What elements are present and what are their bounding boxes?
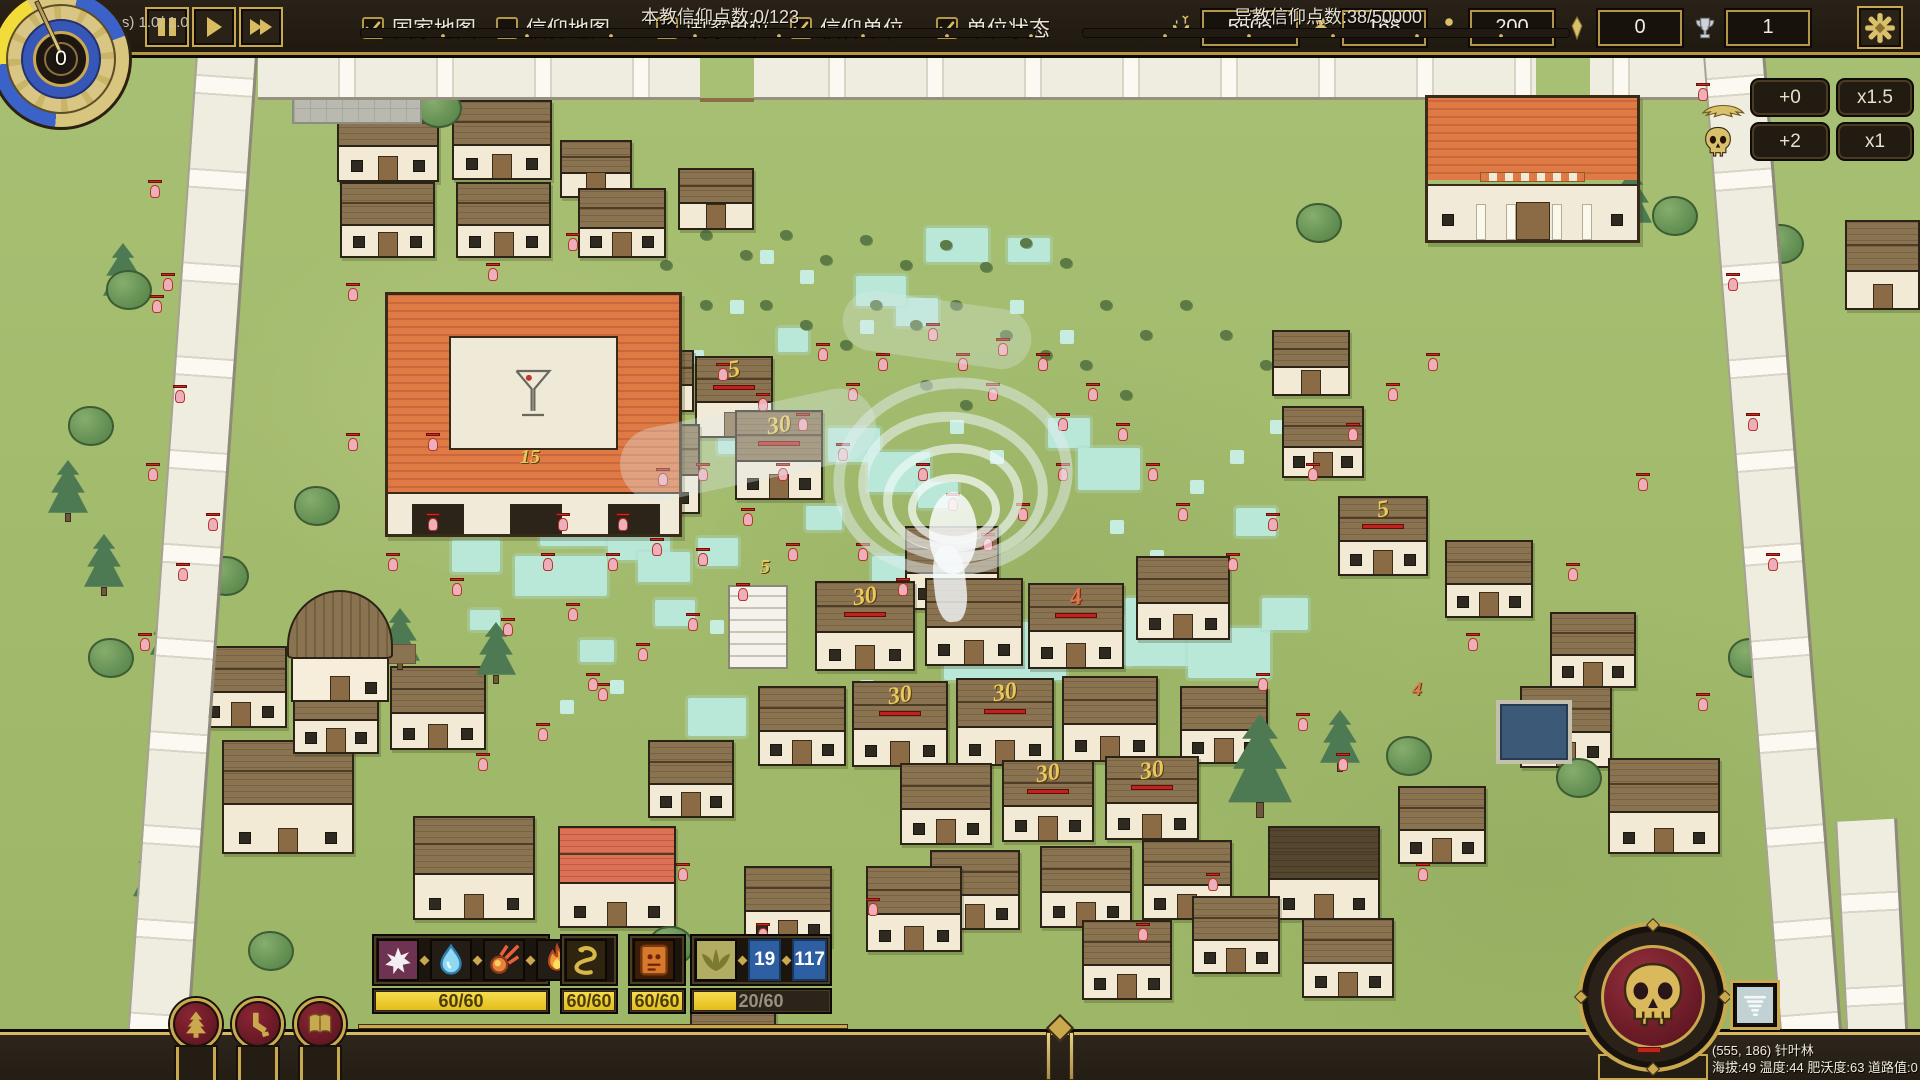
house-wall: [560, 884, 674, 926]
medallion-tail: [300, 1047, 340, 1080]
ability-icons-row: [560, 934, 618, 986]
house-window: [648, 906, 660, 918]
bush: [1220, 330, 1232, 340]
house[interactable]: [413, 816, 535, 920]
house-wall: [1138, 604, 1228, 638]
house-roof: [1447, 542, 1531, 585]
house-window: [355, 732, 367, 744]
unit-health-bar: [866, 898, 880, 901]
enemy-unit[interactable]: [1178, 508, 1188, 521]
round-hut[interactable]: [287, 590, 393, 702]
enemy-unit[interactable]: [208, 518, 218, 531]
ability-meteor[interactable]: [483, 939, 525, 981]
unit-health-bar: [346, 283, 360, 286]
house-door: [428, 724, 448, 748]
cooldown-bar: 20/60: [690, 988, 832, 1014]
round-tree: [294, 486, 340, 526]
enemy-unit[interactable]: [1748, 418, 1758, 431]
temple-secondary[interactable]: [1425, 95, 1640, 243]
house-wall: [224, 805, 352, 852]
enemy-unit[interactable]: [718, 368, 728, 381]
unit-health-bar: [426, 513, 440, 516]
house[interactable]: [900, 763, 992, 845]
enemy-unit[interactable]: [163, 278, 173, 291]
house-window: [1192, 742, 1204, 754]
unit-health-bar: [676, 863, 690, 866]
house[interactable]: [1445, 540, 1533, 618]
house-window: [469, 236, 481, 248]
enemy-unit[interactable]: [1418, 868, 1428, 881]
house-window: [413, 160, 425, 172]
house-window: [967, 823, 979, 835]
house-window: [829, 649, 841, 661]
ability-icons-row: [372, 934, 550, 986]
house-window: [1256, 952, 1268, 964]
enemy-unit[interactable]: [1228, 558, 1238, 571]
enemy-unit[interactable]: [543, 558, 553, 571]
house-wall: [958, 728, 1052, 764]
round-tree: [1386, 736, 1432, 776]
ability-icons-row: [628, 934, 686, 986]
house[interactable]: [1302, 918, 1394, 998]
temple-wall: [1428, 184, 1637, 240]
house[interactable]: [866, 866, 962, 952]
unit-health-bar: [1086, 383, 1100, 386]
enemy-unit[interactable]: [588, 678, 598, 691]
temple-main[interactable]: [385, 292, 682, 537]
house-window: [1353, 898, 1365, 910]
unit-health-bar: [541, 553, 555, 556]
house-window: [969, 744, 981, 756]
tornado-mini-icon: [1741, 991, 1769, 1019]
cooldown-bar: 60/60: [372, 988, 550, 1014]
water-patch: [1230, 450, 1244, 464]
enemy-unit[interactable]: [1208, 878, 1218, 891]
enemy-unit[interactable]: [818, 348, 828, 361]
house-wall: [454, 146, 550, 178]
pine-tree: [48, 460, 88, 522]
house-roof: [1400, 788, 1484, 831]
enemy-unit[interactable]: [788, 548, 798, 561]
bush: [820, 255, 832, 265]
fast-forward-button[interactable]: [239, 7, 283, 47]
house[interactable]: [1062, 676, 1158, 762]
house-wall: [1004, 807, 1092, 840]
unit-health-bar: [686, 613, 700, 616]
enemy-unit[interactable]: [428, 438, 438, 451]
house[interactable]: [1550, 612, 1636, 688]
enemy-unit[interactable]: [503, 623, 513, 636]
enemy-unit[interactable]: [1698, 698, 1708, 711]
unit-health-bar: [696, 548, 710, 551]
water-patch: [638, 552, 690, 582]
house-door: [1117, 974, 1137, 998]
house-window: [574, 906, 586, 918]
unit-health-bar: [1036, 353, 1050, 356]
unit-health-bar: [1636, 473, 1650, 476]
enemy-unit[interactable]: [488, 268, 498, 281]
unit-health-bar: [1226, 553, 1240, 556]
house[interactable]: [1845, 220, 1920, 310]
world-map[interactable]: 5303043030303051554: [0, 0, 1920, 1080]
separator-diamond: [526, 955, 536, 965]
cooldown-text: 20/60: [692, 990, 830, 1012]
water-patch: [610, 680, 624, 694]
enemy-unit[interactable]: [175, 390, 185, 403]
enemy-unit[interactable]: [1148, 468, 1158, 481]
enemy-unit[interactable]: [608, 558, 618, 571]
bush: [980, 262, 992, 272]
bush: [740, 250, 752, 260]
enemy-unit[interactable]: [1138, 928, 1148, 941]
unit-health-bar: [1346, 423, 1360, 426]
house-door: [1173, 614, 1193, 638]
tile-stats: 海拔:49 温度:44 肥沃度:63 道路值:0: [1712, 1059, 1918, 1076]
house-window: [507, 898, 519, 910]
house-window: [799, 478, 811, 490]
enemy-unit[interactable]: [568, 608, 578, 621]
meteor-icon: [485, 941, 523, 979]
enemy-unit[interactable]: [1728, 278, 1738, 291]
enemy-unit[interactable]: [688, 618, 698, 631]
house-window: [461, 728, 473, 740]
unit-health-bar: [1766, 553, 1780, 556]
nature-medallion[interactable]: [170, 998, 222, 1080]
enemy-unit[interactable]: [598, 688, 608, 701]
unit-health-bar: [1466, 633, 1480, 636]
house-window: [1075, 740, 1087, 752]
house-wall: [1274, 368, 1348, 394]
bush: [800, 320, 812, 330]
tornado-mist: [839, 287, 1036, 373]
house[interactable]: [578, 188, 666, 258]
house-roof: [868, 868, 960, 915]
house-wall: [902, 810, 990, 843]
house-roof: [746, 868, 830, 912]
house[interactable]: [1272, 330, 1350, 396]
house-wall: [339, 147, 437, 180]
house-door: [855, 645, 875, 669]
enemy-unit[interactable]: [652, 543, 662, 556]
bush: [700, 300, 712, 310]
house[interactable]: [648, 740, 734, 818]
house[interactable]: [558, 826, 676, 928]
temple-courtyard: [449, 336, 618, 451]
ability-snake[interactable]: [565, 939, 607, 981]
tornado[interactable]: [828, 378, 1080, 622]
tile-info: (555, 186) 针叶林 海拔:49 温度:44 肥沃度:63 道路值:0: [1712, 1042, 1918, 1076]
house-count-label: 30: [1138, 756, 1166, 786]
house-window: [353, 236, 365, 248]
unit-health-bar: [346, 433, 360, 436]
enemy-unit[interactable]: [1468, 638, 1478, 651]
house-window: [1149, 618, 1161, 630]
enemy-unit[interactable]: [1428, 358, 1438, 371]
house-window: [938, 644, 950, 656]
beast-medallion[interactable]: [232, 998, 284, 1080]
house-roof: [458, 184, 549, 226]
enemy-unit[interactable]: [478, 758, 488, 771]
bush: [1020, 238, 1032, 248]
water-patch: [580, 640, 614, 662]
house-wall: [1084, 966, 1170, 998]
house-wall: [1107, 804, 1197, 838]
house[interactable]: [1282, 406, 1364, 478]
house[interactable]: [222, 740, 354, 854]
enemy-unit[interactable]: [738, 588, 748, 601]
modifier-mult-button[interactable]: x1.5: [1838, 80, 1912, 115]
house-roof: [1552, 614, 1634, 656]
water-patch: [730, 300, 744, 314]
water-patch: [1110, 520, 1124, 534]
house-window: [710, 796, 722, 808]
house-roof: [1138, 558, 1228, 604]
enemy-unit[interactable]: [618, 518, 628, 531]
disaster-slot-button[interactable]: [1730, 980, 1780, 1030]
cooldown-text: 60/60: [562, 990, 616, 1012]
house-door: [1373, 550, 1393, 574]
ability-waterdrop[interactable]: [430, 939, 472, 981]
enemy-unit[interactable]: [1768, 558, 1778, 571]
house-door: [612, 232, 632, 256]
house-roof: [680, 170, 752, 204]
house-window: [1029, 744, 1041, 756]
splat-icon: [379, 941, 417, 979]
modifier-add-button[interactable]: +0: [1752, 80, 1828, 115]
house-door: [681, 792, 701, 816]
ability-icons-row: 19117: [690, 934, 832, 986]
house-wall: [1340, 542, 1426, 574]
house-window: [1204, 952, 1216, 964]
house[interactable]: 5: [1338, 496, 1428, 576]
house[interactable]: [1608, 758, 1720, 854]
house[interactable]: [452, 100, 552, 180]
house-wall: [458, 226, 549, 256]
enemy-unit[interactable]: [1118, 428, 1128, 441]
enemy-unit[interactable]: [1268, 518, 1278, 531]
house-window: [1369, 976, 1381, 988]
house-window: [1693, 832, 1705, 844]
stone-pond: [1496, 700, 1572, 764]
house-roof: [415, 818, 533, 875]
house-wall: [1610, 813, 1718, 852]
house[interactable]: [1040, 846, 1132, 928]
house-roof: [1084, 922, 1170, 966]
unit-health-bar: [148, 180, 162, 183]
house[interactable]: 30: [956, 678, 1054, 766]
house-wall: [580, 229, 664, 256]
unit-health-bar: [486, 263, 500, 266]
unit-health-bar: [1336, 753, 1350, 756]
house-window: [1457, 596, 1469, 608]
house[interactable]: 30: [852, 681, 948, 767]
bush: [1260, 360, 1272, 370]
sun-button[interactable]: [1857, 6, 1903, 49]
unit-health-bar: [161, 273, 175, 276]
lore-medallion[interactable]: [294, 998, 346, 1080]
ability-wings[interactable]: [695, 939, 737, 981]
waterdrop-icon: [432, 941, 470, 979]
house[interactable]: [340, 182, 435, 258]
separator-diamond: [738, 955, 748, 965]
house-window: [351, 160, 363, 172]
tree-icon: [181, 1009, 211, 1039]
enemy-unit[interactable]: [1348, 428, 1358, 441]
enemy-unit[interactable]: [348, 288, 358, 301]
enemy-unit[interactable]: [428, 518, 438, 531]
enemy-unit[interactable]: [1258, 678, 1268, 691]
cooldown-text: 60/60: [630, 990, 684, 1012]
enemy-unit[interactable]: [1568, 568, 1578, 581]
medallion-circle: [232, 998, 284, 1050]
unit-health-bar: [386, 553, 400, 556]
house[interactable]: [456, 182, 551, 258]
house-window: [1623, 832, 1635, 844]
modifier-add-button[interactable]: +2: [1752, 124, 1828, 159]
unit-health-bar: [1176, 503, 1190, 506]
enemy-unit[interactable]: [558, 518, 568, 531]
ability-bar-base: [358, 1024, 848, 1029]
house-window: [526, 158, 538, 170]
house[interactable]: [1268, 826, 1380, 920]
cooldown-text: 60/60: [374, 990, 548, 1012]
house-window: [1041, 647, 1053, 659]
house[interactable]: [678, 168, 754, 230]
house-window: [923, 745, 935, 757]
unit-health-bar: [816, 343, 830, 346]
house-roof: [902, 765, 990, 810]
house-door: [1654, 828, 1674, 852]
unit-health-bar: [176, 563, 190, 566]
house-window: [1069, 820, 1081, 832]
book-icon: [305, 1009, 335, 1039]
temple-awning: [1480, 172, 1585, 182]
unit-health-bar: [650, 538, 664, 541]
ability-tablet[interactable]: [633, 939, 675, 981]
house-wall: [854, 730, 946, 765]
house-health-bar: [713, 385, 755, 390]
house-window: [1118, 818, 1130, 830]
house-door: [1338, 972, 1358, 996]
bush: [1060, 258, 1072, 268]
resource-trophy: 1: [1692, 10, 1810, 46]
house-count-label: 30: [886, 681, 914, 711]
enemy-unit[interactable]: [148, 468, 158, 481]
enemy-unit[interactable]: [452, 583, 462, 596]
house-door: [494, 232, 514, 256]
unit-health-bar: [450, 578, 464, 581]
house-window: [1154, 898, 1166, 910]
unit-health-bar: [206, 513, 220, 516]
enemy-unit[interactable]: [1308, 468, 1318, 481]
enemy-unit[interactable]: [1638, 478, 1648, 491]
house[interactable]: 30: [1002, 760, 1094, 842]
water-patch: [1078, 448, 1140, 490]
house[interactable]: [758, 686, 846, 766]
bush: [940, 240, 952, 250]
play-button[interactable]: [192, 7, 236, 47]
enemy-unit[interactable]: [150, 185, 160, 198]
house-window: [822, 744, 834, 756]
house[interactable]: [1136, 556, 1230, 640]
time-dial[interactable]: 0: [0, 0, 132, 130]
round-tree: [248, 931, 294, 971]
enemy-unit[interactable]: [152, 300, 162, 313]
house-window: [590, 236, 602, 248]
enemy-unit[interactable]: [698, 553, 708, 566]
water-patch: [1190, 480, 1204, 494]
enemy-unit[interactable]: [743, 513, 753, 526]
enemy-unit[interactable]: [1298, 718, 1308, 731]
house-window: [1315, 976, 1327, 988]
medallion-circle: [170, 998, 222, 1050]
house-window: [998, 644, 1010, 656]
house-health-bar: [984, 709, 1026, 714]
enemy-unit[interactable]: [140, 638, 150, 651]
city-wall-top: [258, 56, 1710, 100]
tornado-card: [1737, 987, 1773, 1023]
house[interactable]: 30: [1105, 756, 1199, 840]
house[interactable]: [1192, 896, 1280, 974]
house-window: [305, 732, 317, 744]
house-door: [1066, 643, 1086, 667]
house-wall: [1847, 272, 1918, 308]
round-tree: [1296, 203, 1342, 243]
enemy-unit[interactable]: [538, 728, 548, 741]
house-door: [1038, 816, 1058, 840]
enemy-unit[interactable]: [1388, 388, 1398, 401]
pine-tree: [1228, 714, 1292, 818]
unit-health-bar: [556, 513, 570, 516]
unit-health-bar: [606, 553, 620, 556]
ability-group-1: 60/60: [372, 934, 550, 1014]
house-window: [239, 832, 251, 844]
modifier-mult-button[interactable]: x1: [1838, 124, 1912, 159]
unit-health-bar: [1256, 673, 1270, 676]
enemy-unit[interactable]: [678, 868, 688, 881]
house-roof: [560, 828, 674, 884]
house[interactable]: [1398, 786, 1486, 864]
snake-icon: [567, 941, 605, 979]
bush: [660, 260, 672, 270]
house[interactable]: [1082, 920, 1172, 1000]
enemy-unit[interactable]: [878, 358, 888, 371]
house-door: [792, 740, 812, 764]
house-window: [1509, 596, 1521, 608]
ability-group-3: 60/60: [628, 934, 686, 1014]
house-window: [1148, 978, 1160, 990]
house-window: [879, 930, 891, 942]
house-wall: [1400, 831, 1484, 862]
house[interactable]: [390, 666, 486, 750]
house-roof: [1610, 760, 1718, 813]
wall-gate: [700, 56, 754, 102]
house-window: [642, 236, 654, 248]
enemy-unit[interactable]: [1088, 388, 1098, 401]
house-roof: [1304, 920, 1392, 964]
enemy-unit[interactable]: [1038, 358, 1048, 371]
house-wall: [868, 915, 960, 950]
enemy-unit[interactable]: [638, 648, 648, 661]
enemy-unit[interactable]: [348, 438, 358, 451]
scroll-object[interactable]: [728, 585, 788, 669]
enemy-unit[interactable]: [868, 903, 878, 916]
enemy-unit[interactable]: [178, 568, 188, 581]
enemy-unit[interactable]: [1338, 758, 1348, 771]
enemy-unit[interactable]: [568, 238, 578, 251]
ability-splat[interactable]: [377, 939, 419, 981]
enemy-unit[interactable]: [388, 558, 398, 571]
